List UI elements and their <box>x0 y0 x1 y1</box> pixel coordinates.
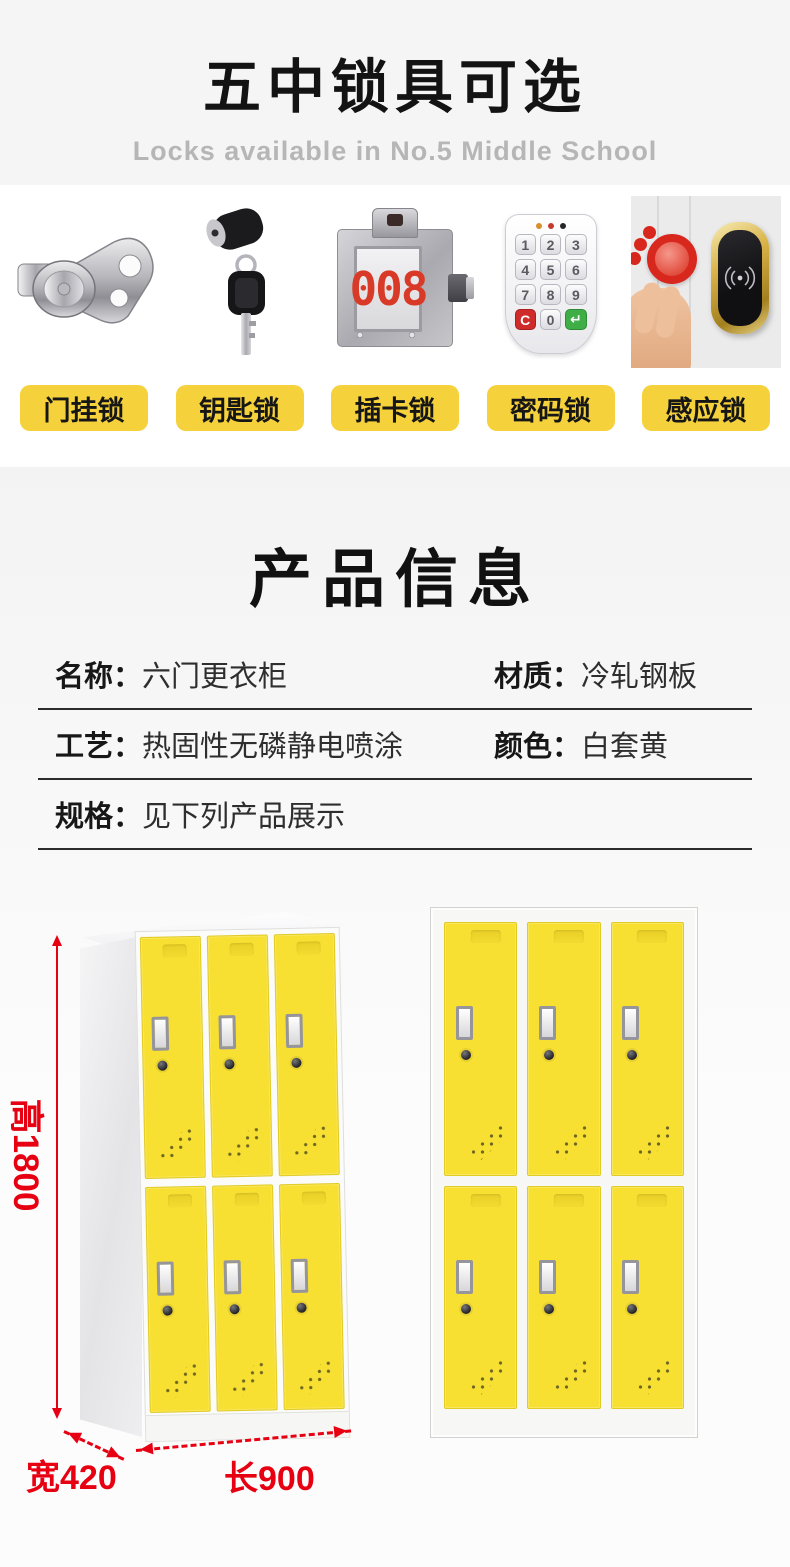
spec-table: 名称：六门更衣柜 材质：冷轧钢板 工艺：热固性无磷静电喷涂 颜色：白套黄 规格：… <box>38 640 752 850</box>
name-card-slot-icon <box>156 1261 174 1295</box>
key-lock-icon <box>191 205 287 357</box>
locker-door <box>274 933 340 1176</box>
spec-label: 材质： <box>494 661 581 693</box>
keypad-key: 7 <box>515 284 536 305</box>
spec-value: 见下列产品展示 <box>142 801 345 833</box>
locker-image-front <box>430 907 698 1438</box>
name-card-slot-icon <box>290 1259 308 1293</box>
locker-side-face <box>80 936 142 1437</box>
padlock-image <box>6 185 162 377</box>
spec-material: 材质：冷轧钢板 <box>494 653 752 695</box>
lock-type-badge-password: 密码锁 <box>487 385 615 431</box>
name-card-slot-icon <box>622 1260 639 1294</box>
section-title: 产品信息 <box>0 467 790 620</box>
product-detail-image: 五中锁具可选 Locks available in No.5 Middle Sc… <box>0 0 790 1567</box>
height-dimension-arrow <box>56 941 58 1413</box>
locker-image-perspective <box>135 927 351 1442</box>
name-card-slot-icon <box>456 1260 473 1294</box>
locks-band: 008 1 2 3 4 5 6 7 <box>0 185 790 467</box>
password-lock-image: 1 2 3 4 5 6 7 8 9 C 0 ↵ <box>473 185 629 377</box>
name-card-slot-icon <box>223 1260 241 1294</box>
side-latch-icon <box>448 274 468 302</box>
name-card-slot-icon <box>151 1017 169 1051</box>
locker-doors-grid <box>140 933 345 1413</box>
lock-type-badge-rfid: 感应锁 <box>642 385 770 431</box>
lock-type-labels: 门挂锁 钥匙锁 插卡锁 密码锁 感应锁 <box>0 385 790 431</box>
wristband-bead <box>631 252 641 265</box>
antenna-icon <box>723 265 757 291</box>
header-band: 五中锁具可选 Locks available in No.5 Middle Sc… <box>0 0 790 185</box>
locker-door <box>140 936 206 1179</box>
spec-value: 六门更衣柜 <box>142 661 287 693</box>
number-plate: 008 <box>354 246 422 332</box>
name-card-slot-icon <box>539 1260 556 1294</box>
spec-name: 名称：六门更衣柜 <box>38 653 494 695</box>
height-dimension-label: 高1800 <box>16 1089 54 1221</box>
spec-value: 白套黄 <box>581 731 668 763</box>
spec-size: 规格：见下列产品展示 <box>38 793 494 835</box>
locker-door <box>611 1186 684 1409</box>
locker-door <box>444 922 517 1176</box>
wristband-bead <box>643 226 656 239</box>
key-lock-image <box>162 185 318 377</box>
keypad-key: 6 <box>565 259 586 280</box>
name-card-slot-icon <box>456 1006 473 1040</box>
spec-process: 工艺：热固性无磷静电喷涂 <box>38 723 494 765</box>
table-row: 名称：六门更衣柜 材质：冷轧钢板 <box>38 640 752 710</box>
lock-type-badge-key: 钥匙锁 <box>176 385 304 431</box>
page-subtitle: Locks available in No.5 Middle School <box>0 136 790 167</box>
spec-label: 规格： <box>55 801 142 833</box>
table-row: 规格：见下列产品展示 <box>38 780 752 850</box>
width-dimension-label: 宽420 <box>26 1450 117 1499</box>
card-lock-body: 008 <box>337 229 453 347</box>
page-title: 五中锁具可选 <box>0 0 790 124</box>
locker-number: 008 <box>349 262 426 316</box>
indicator-leds-icon <box>515 223 587 229</box>
keypad-key: 8 <box>540 284 561 305</box>
keypad-clear-key: C <box>515 309 536 330</box>
keypad-body: 1 2 3 4 5 6 7 8 9 C 0 ↵ <box>505 214 597 354</box>
locker-door <box>527 922 600 1176</box>
rfid-lock-photo <box>631 196 781 368</box>
locker-door <box>207 934 273 1177</box>
keypad-key: 4 <box>515 259 536 280</box>
latch-mechanism-icon <box>372 208 418 238</box>
name-card-slot-icon <box>218 1015 236 1049</box>
spec-label: 颜色： <box>494 731 581 763</box>
rfid-reader-face <box>718 230 762 326</box>
rfid-reader-icon <box>711 222 769 334</box>
table-row: 工艺：热固性无磷静电喷涂 颜色：白套黄 <box>38 710 752 780</box>
locker-door <box>145 1186 211 1413</box>
locker-door <box>279 1183 345 1410</box>
locker-doors-grid <box>444 922 684 1409</box>
lock-type-badge-card: 插卡锁 <box>331 385 459 431</box>
keypad-keys: 1 2 3 4 5 6 7 8 9 C 0 ↵ <box>515 234 587 330</box>
length-dimension-label: 长900 <box>224 1451 315 1500</box>
keypad-key: 9 <box>565 284 586 305</box>
spec-label: 名称： <box>55 661 142 693</box>
keypad-enter-key: ↵ <box>565 309 586 330</box>
cam-lock-icon <box>8 226 160 336</box>
screws-icon <box>352 330 422 340</box>
spec-value: 热固性无磷静电喷涂 <box>142 731 403 763</box>
locker-door <box>527 1186 600 1409</box>
locker-door <box>611 922 684 1176</box>
locker-door <box>444 1186 517 1409</box>
keypad-key: 2 <box>540 234 561 255</box>
keypad-key: 5 <box>540 259 561 280</box>
keypad-key: 3 <box>565 234 586 255</box>
rfid-lock-image <box>628 185 784 377</box>
name-card-slot-icon <box>539 1006 556 1040</box>
keypad-key: 1 <box>515 234 536 255</box>
spec-color: 颜色：白套黄 <box>494 723 752 765</box>
rfid-fob-icon <box>647 234 697 284</box>
wristband-bead <box>634 238 647 251</box>
name-card-slot-icon <box>285 1014 303 1048</box>
name-card-slot-icon <box>622 1006 639 1040</box>
spec-label: 工艺： <box>55 731 142 763</box>
lock-type-badge-padlock: 门挂锁 <box>20 385 148 431</box>
card-lock-image: 008 <box>317 185 473 377</box>
lock-images-row: 008 1 2 3 4 5 6 7 <box>0 185 790 377</box>
keypad-key: 0 <box>540 309 561 330</box>
spec-value: 冷轧钢板 <box>581 661 697 693</box>
locker-door <box>212 1184 278 1411</box>
